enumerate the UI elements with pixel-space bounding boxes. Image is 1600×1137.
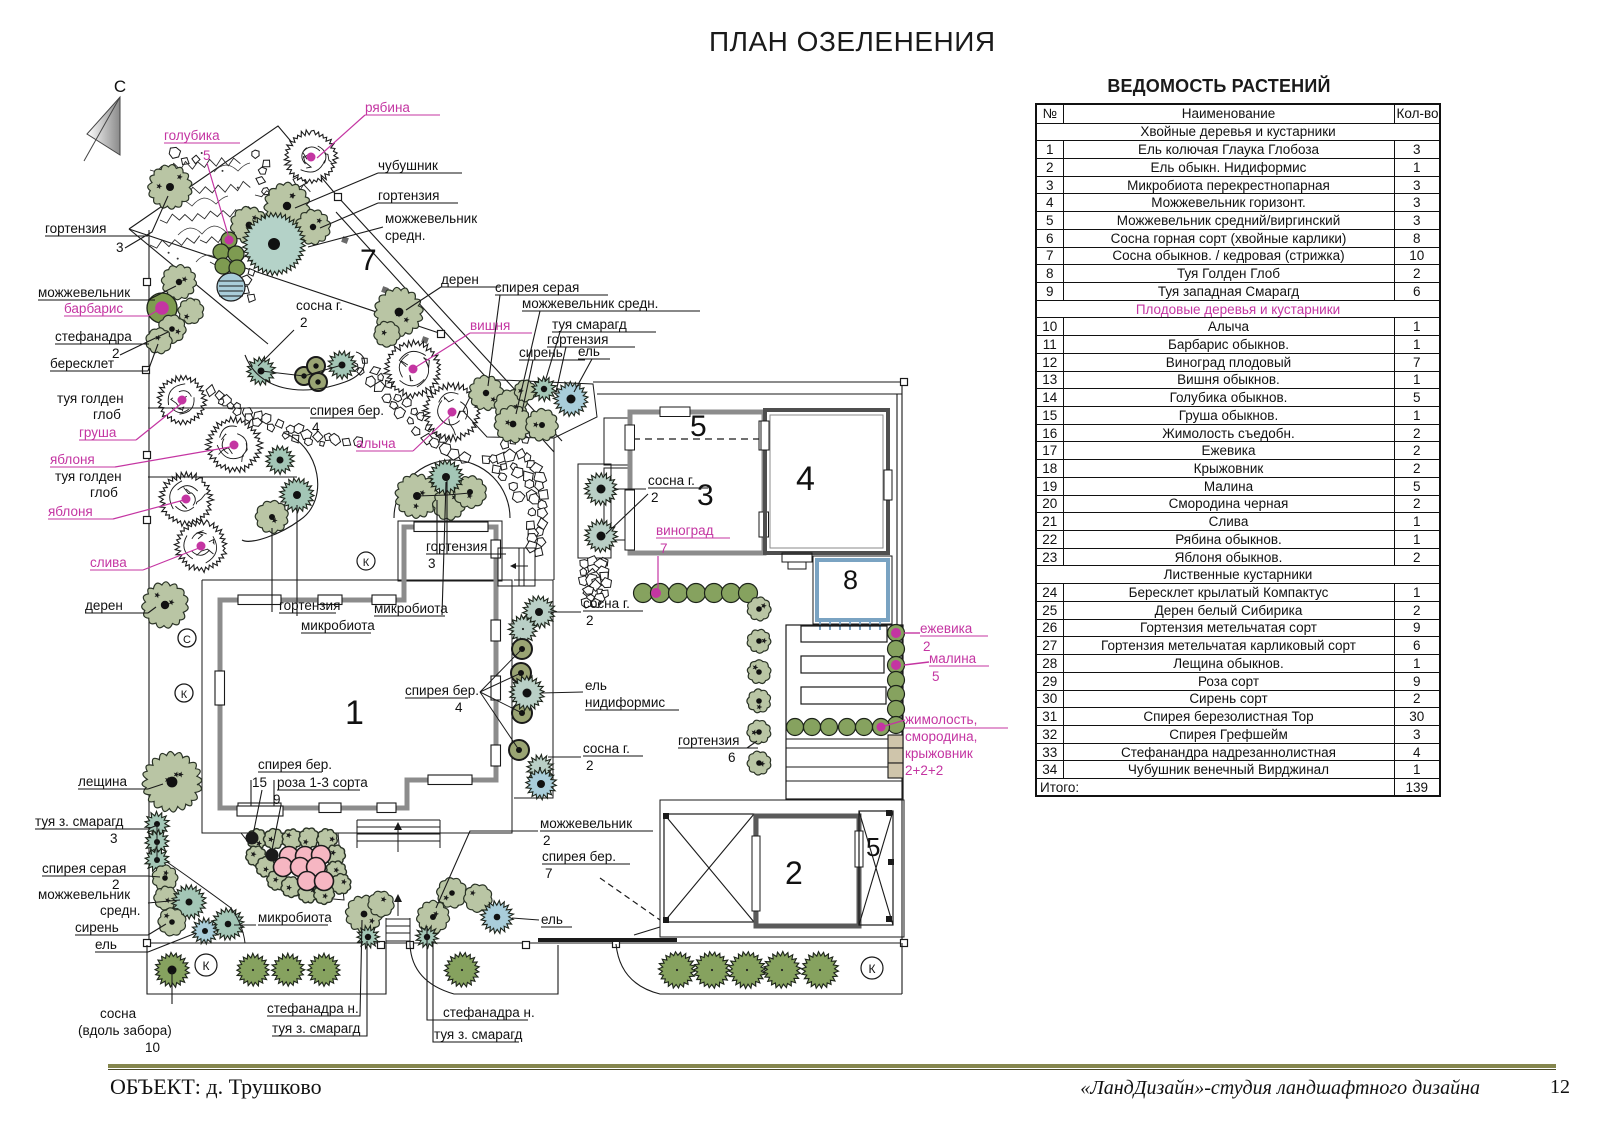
- svg-text:5: 5: [203, 148, 211, 163]
- svg-text:можжевельник: можжевельник: [38, 285, 130, 300]
- svg-text:барбарис: барбарис: [64, 301, 123, 316]
- svg-text:роза 1-3 сорта: роза 1-3 сорта: [277, 775, 368, 790]
- svg-text:4: 4: [796, 460, 815, 498]
- svg-text:5: 5: [690, 410, 707, 443]
- svg-text:стефанадра н.: стефанадра н.: [267, 1001, 359, 1016]
- svg-text:2: 2: [300, 315, 308, 330]
- svg-text:ежевика: ежевика: [920, 621, 973, 636]
- svg-text:ель: ель: [578, 344, 600, 359]
- svg-text:С: С: [183, 634, 191, 646]
- svg-text:2: 2: [586, 758, 594, 773]
- svg-text:3: 3: [116, 240, 124, 255]
- svg-text:нидиформис: нидиформис: [585, 695, 665, 710]
- svg-text:гортензия: гортензия: [678, 733, 739, 748]
- svg-text:микробиота: микробиота: [374, 601, 448, 616]
- svg-text:лещина: лещина: [78, 774, 127, 789]
- svg-text:дерен: дерен: [441, 272, 479, 287]
- svg-text:10: 10: [145, 1040, 160, 1055]
- svg-text:15: 15: [252, 775, 267, 790]
- svg-text:7: 7: [360, 244, 377, 277]
- svg-text:1: 1: [345, 694, 364, 732]
- svg-text:2+2+2: 2+2+2: [905, 763, 943, 778]
- svg-text:можжевельник средн.: можжевельник средн.: [522, 296, 658, 311]
- svg-text:2: 2: [651, 490, 659, 505]
- svg-text:ель: ель: [541, 912, 563, 927]
- svg-text:туя з. смарагд: туя з. смарагд: [434, 1027, 523, 1042]
- svg-text:спирея бер.: спирея бер.: [405, 683, 479, 698]
- svg-text:сосна г.: сосна г.: [296, 298, 343, 313]
- svg-text:8: 8: [843, 565, 858, 595]
- svg-text:гортензия: гортензия: [279, 598, 340, 613]
- svg-text:чубушник: чубушник: [378, 158, 438, 173]
- svg-text:спирея бер.: спирея бер.: [258, 757, 332, 772]
- svg-text:гортензия: гортензия: [378, 188, 439, 203]
- svg-text:спирея бер.: спирея бер.: [542, 849, 616, 864]
- svg-text:К: К: [869, 962, 876, 976]
- svg-text:можжевельник: можжевельник: [38, 887, 130, 902]
- svg-text:5: 5: [932, 669, 940, 684]
- svg-text:6: 6: [728, 750, 736, 765]
- svg-text:можжевельник: можжевельник: [540, 816, 632, 831]
- svg-text:сирень: сирень: [519, 345, 563, 360]
- svg-text:крыжовник: крыжовник: [905, 746, 973, 761]
- svg-text:сирень: сирень: [75, 920, 119, 935]
- svg-text:бересклет: бересклет: [50, 356, 114, 371]
- svg-text:спирея серая: спирея серая: [495, 280, 579, 295]
- svg-text:гортензия: гортензия: [45, 221, 106, 236]
- svg-text:гортензия: гортензия: [426, 539, 487, 554]
- svg-text:микробиота: микробиота: [258, 910, 332, 925]
- svg-text:К: К: [181, 689, 188, 701]
- svg-text:средн.: средн.: [100, 903, 141, 918]
- svg-text:3: 3: [110, 831, 118, 846]
- svg-text:7: 7: [660, 541, 668, 556]
- svg-text:малина: малина: [929, 651, 977, 666]
- svg-text:яблоня: яблоня: [48, 504, 93, 519]
- svg-text:средн.: средн.: [385, 228, 426, 243]
- svg-text:можжевельник: можжевельник: [385, 211, 477, 226]
- svg-text:сосна г.: сосна г.: [583, 741, 630, 756]
- svg-text:туя з. смарагд: туя з. смарагд: [35, 814, 124, 829]
- svg-text:слива: слива: [90, 555, 127, 570]
- svg-text:яблоня: яблоня: [50, 452, 95, 467]
- svg-text:ель: ель: [95, 937, 117, 952]
- svg-text:виноград: виноград: [656, 523, 714, 538]
- svg-text:сосна: сосна: [100, 1006, 137, 1021]
- svg-text:глоб: глоб: [93, 407, 121, 422]
- svg-text:стефанадра: стефанадра: [55, 329, 132, 344]
- svg-text:микробиота: микробиота: [301, 618, 375, 633]
- svg-text:спирея бер.: спирея бер.: [310, 403, 384, 418]
- svg-text:глоб: глоб: [90, 485, 118, 500]
- svg-text:алыча: алыча: [356, 436, 396, 451]
- svg-text:стефанадра н.: стефанадра н.: [443, 1005, 535, 1020]
- svg-text:9: 9: [273, 792, 281, 807]
- svg-text:туя смарагд: туя смарагд: [552, 317, 627, 332]
- svg-text:4: 4: [455, 700, 463, 715]
- svg-text:туя голден: туя голден: [57, 391, 124, 406]
- svg-text:жимолость,: жимолость,: [905, 712, 977, 727]
- svg-text:смородина,: смородина,: [905, 729, 977, 744]
- svg-text:голубика: голубика: [164, 128, 220, 143]
- svg-text:3: 3: [428, 556, 436, 571]
- svg-text:ель: ель: [585, 678, 607, 693]
- svg-text:груша: груша: [79, 425, 117, 440]
- svg-text:2: 2: [586, 613, 594, 628]
- svg-text:2: 2: [785, 855, 803, 891]
- svg-text:дерен: дерен: [85, 598, 123, 613]
- svg-text:2: 2: [543, 833, 551, 848]
- svg-text:сосна г.: сосна г.: [648, 473, 695, 488]
- svg-text:вишня: вишня: [470, 318, 510, 333]
- svg-text:рябина: рябина: [365, 100, 410, 115]
- svg-text:туя з. смарагд: туя з. смарагд: [272, 1021, 361, 1036]
- svg-text:7: 7: [545, 866, 553, 881]
- svg-text:К: К: [203, 959, 210, 973]
- svg-text:4: 4: [312, 420, 320, 435]
- svg-text:К: К: [363, 557, 370, 569]
- svg-text:спирея серая: спирея серая: [42, 861, 126, 876]
- svg-text:сосна г.: сосна г.: [583, 596, 630, 611]
- svg-text:5: 5: [866, 832, 880, 862]
- svg-text:(вдоль забора): (вдоль забора): [78, 1023, 172, 1038]
- svg-text:туя голден: туя голден: [55, 469, 122, 484]
- svg-text:3: 3: [697, 479, 714, 512]
- svg-text:С: С: [114, 77, 126, 96]
